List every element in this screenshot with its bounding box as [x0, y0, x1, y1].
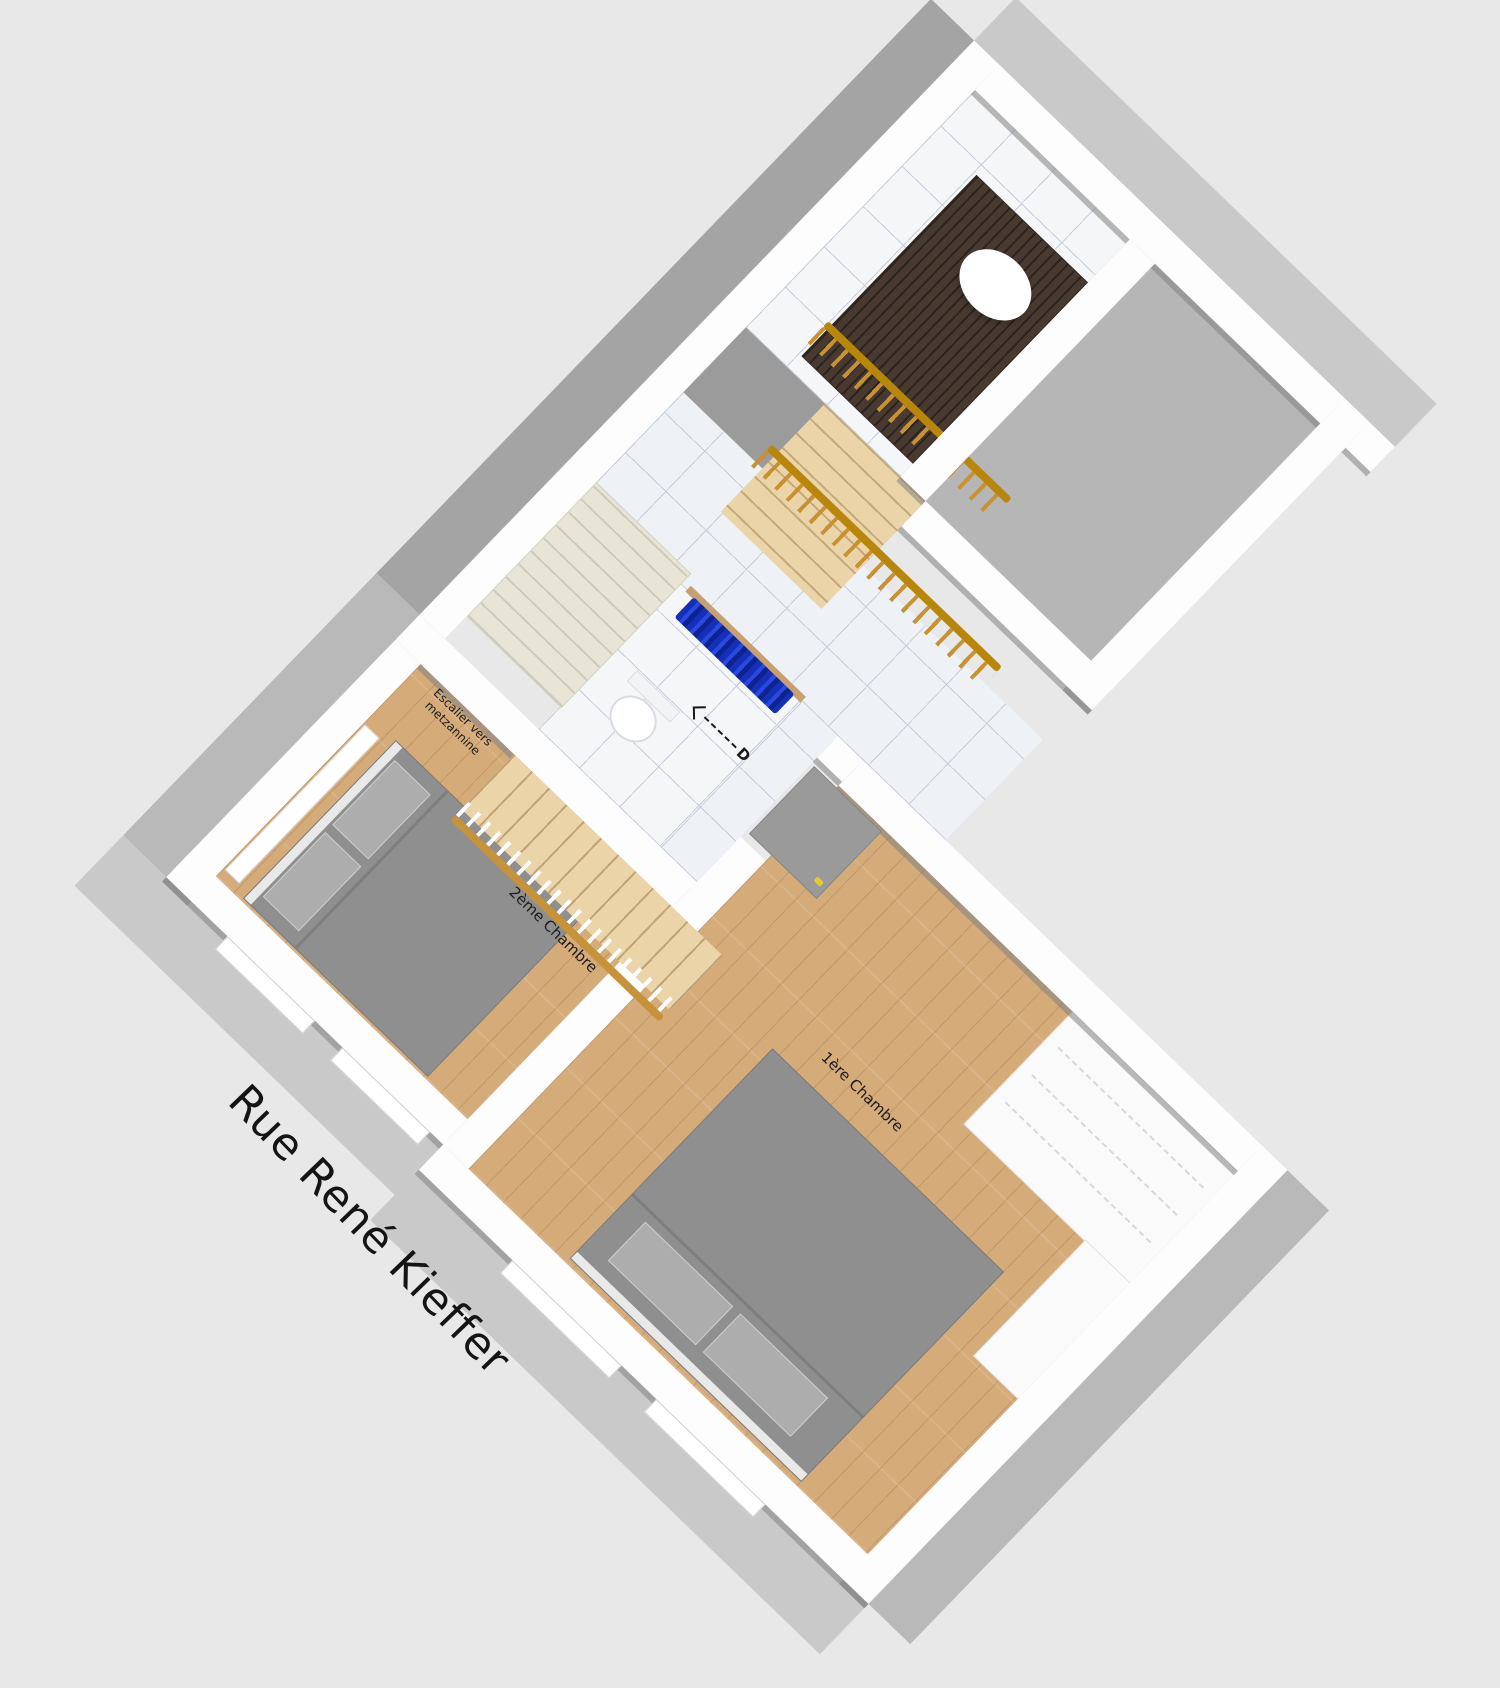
yellow-door-handle — [813, 876, 824, 887]
dresser-drawer-line — [1031, 1074, 1178, 1216]
arrow-head-icon — [693, 706, 706, 719]
floor-plan-scene: Escalier vers metzannine 2ème Chambre 1è… — [0, 0, 1500, 1688]
